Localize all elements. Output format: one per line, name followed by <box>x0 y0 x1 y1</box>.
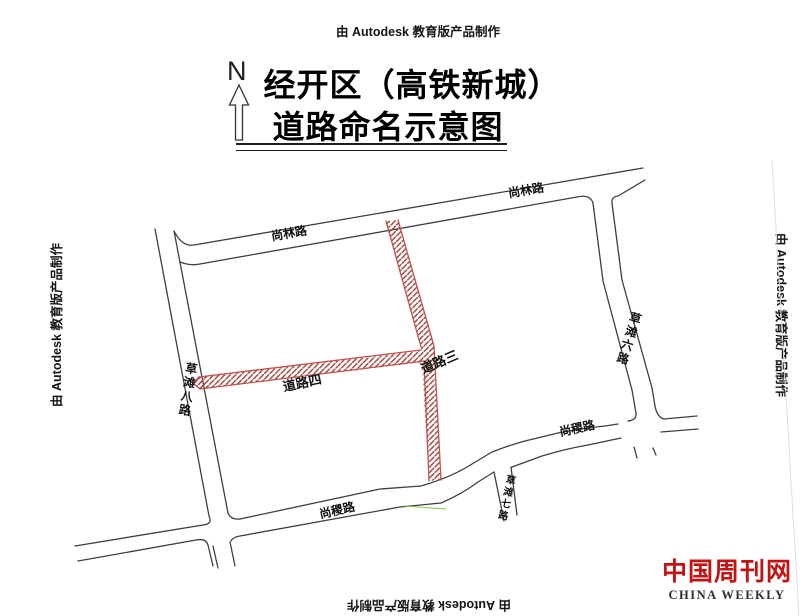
logo-chinese-text: 中国周刊网 <box>660 558 794 588</box>
green-artifact-line <box>404 506 446 509</box>
caotan6-south-stubs <box>634 447 656 458</box>
page: 由 Autodesk 教育版产品制作 由 Autodesk 教育版产品制作 由 … <box>0 0 800 616</box>
road-shangji-east-段 <box>661 416 698 432</box>
caotan6-crossing-corner-nw <box>628 390 636 421</box>
caotan6-crossing-corner-ne <box>652 388 664 419</box>
page-edge-artifact <box>772 160 799 616</box>
north-arrow-icon <box>230 85 249 140</box>
road-caotan8-south-stub <box>213 542 235 568</box>
logo-english-text: CHINA WEEKLY <box>660 588 794 602</box>
road-shanglin-north-edge <box>174 168 643 245</box>
road-shangji-lower-mid <box>231 472 494 541</box>
china-weekly-logo: 中国周刊网 CHINA WEEKLY <box>660 558 794 602</box>
existing-roads <box>75 168 698 568</box>
road-shangji-lower-west <box>78 540 213 566</box>
road-map-canvas <box>0 0 800 616</box>
road-shangji-lower-mid2 <box>512 438 621 467</box>
